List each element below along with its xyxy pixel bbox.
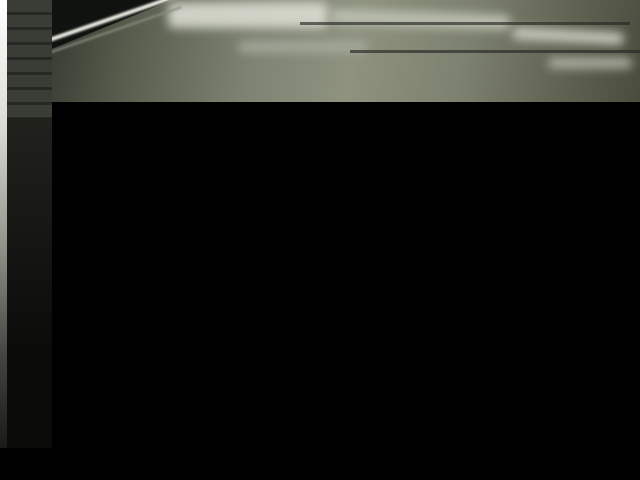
garage-door-panels [7,0,52,118]
wood-wall [612,66,640,448]
left-wall [7,118,52,448]
wall-corner-highlight [0,0,7,448]
showroom-photo: P R N D • VOITURIER 197 km 0 km/h [0,0,640,480]
ceiling-light [330,9,510,30]
map-canvas[interactable]: Rue SpringateParc Julien-LordRue Payant … [0,110,640,480]
ceiling-beam [350,50,640,53]
ceiling-light [512,27,624,45]
ceiling-beam [300,22,630,25]
ceiling-light [238,42,368,52]
